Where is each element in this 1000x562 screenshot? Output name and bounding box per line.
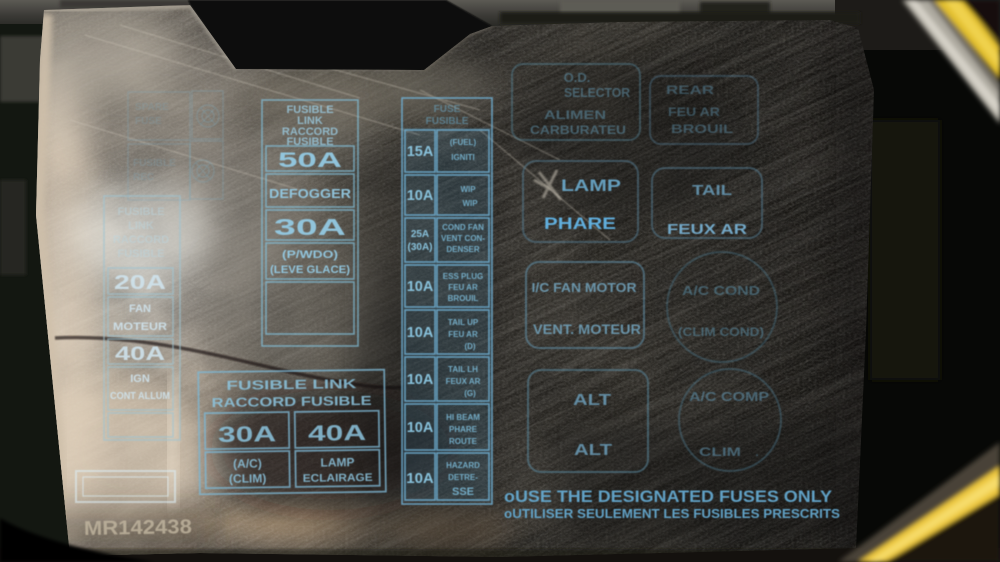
svg-text:MOTEUR: MOTEUR	[113, 321, 167, 333]
svg-text:TAIL UP: TAIL UP	[448, 318, 479, 327]
svg-text:MR142438: MR142438	[84, 516, 192, 540]
svg-text:40A: 40A	[308, 420, 367, 446]
svg-text:FUSIBLE: FUSIBLE	[426, 116, 469, 127]
svg-text:30A: 30A	[218, 421, 277, 447]
svg-text:ALT: ALT	[574, 442, 612, 459]
svg-text:BROUIL: BROUIL	[671, 122, 733, 136]
svg-text:IGNITI: IGNITI	[451, 153, 475, 162]
svg-text:IGN: IGN	[130, 373, 150, 385]
svg-text:RACCORD FUSIBLE: RACCORD FUSIBLE	[212, 393, 373, 410]
svg-text:PHARE: PHARE	[449, 425, 478, 434]
svg-text:10A: 10A	[407, 325, 434, 341]
svg-text:FAN: FAN	[129, 303, 151, 315]
svg-text:DETRE-: DETRE-	[448, 473, 478, 482]
svg-text:(30A): (30A)	[407, 242, 432, 253]
svg-text:FEU AR: FEU AR	[448, 283, 478, 292]
svg-text:(CLIM COND): (CLIM COND)	[678, 325, 764, 339]
svg-text:CARBURATEU: CARBURATEU	[530, 123, 626, 137]
svg-text:ALIMEN: ALIMEN	[544, 108, 606, 122]
svg-text:15A: 15A	[407, 144, 434, 160]
svg-text:ALT: ALT	[573, 392, 611, 409]
svg-text:FEUX AR: FEUX AR	[667, 221, 747, 238]
svg-text:10A: 10A	[407, 372, 434, 388]
svg-text:A/C COND: A/C COND	[682, 283, 760, 298]
svg-text:40A: 40A	[115, 344, 165, 365]
svg-text:TAIL: TAIL	[692, 182, 732, 199]
svg-text:(CLIM): (CLIM)	[229, 471, 267, 486]
svg-text:A/C COMP: A/C COMP	[689, 389, 769, 404]
svg-text:REAR: REAR	[666, 83, 714, 97]
svg-text:HAZARD: HAZARD	[446, 461, 480, 470]
svg-text:SELECTOR: SELECTOR	[564, 85, 631, 100]
svg-text:FUSIBLE: FUSIBLE	[286, 136, 333, 148]
svg-text:oUTILISER SEULEMENT LES FUSIBL: oUTILISER SEULEMENT LES FUSIBLES PRESCRI…	[504, 507, 840, 521]
svg-text:FEU AR: FEU AR	[448, 330, 478, 339]
svg-text:FEUX AR: FEUX AR	[446, 377, 481, 386]
svg-text:SSE: SSE	[452, 486, 474, 498]
svg-text:10A: 10A	[407, 188, 434, 204]
svg-text:PHARE: PHARE	[544, 214, 616, 233]
svg-text:10A: 10A	[407, 279, 434, 295]
svg-text:FUSIBLE: FUSIBLE	[133, 158, 176, 169]
svg-text:(LEVE GLACE): (LEVE GLACE)	[270, 264, 350, 276]
svg-text:(A/C): (A/C)	[233, 456, 262, 470]
svg-text:RACCORD: RACCORD	[113, 234, 169, 246]
svg-text:ECLAIRAGE: ECLAIRAGE	[303, 472, 373, 485]
svg-text:ESS PLUG: ESS PLUG	[443, 272, 483, 281]
svg-text:DEFOGGER: DEFOGGER	[269, 186, 352, 201]
svg-text:REC: REC	[133, 172, 154, 183]
svg-text:20A: 20A	[114, 272, 166, 294]
svg-text:25A: 25A	[411, 229, 429, 240]
svg-text:VENT. MOTEUR: VENT. MOTEUR	[533, 322, 641, 337]
svg-text:CONT ALLUM: CONT ALLUM	[110, 391, 170, 402]
svg-text:FUSIBLE LINK: FUSIBLE LINK	[226, 376, 357, 393]
svg-text:I/C FAN MOTOR: I/C FAN MOTOR	[532, 280, 638, 295]
svg-text:O.D.: O.D.	[564, 70, 591, 85]
svg-text:FUSIBLE: FUSIBLE	[117, 206, 164, 218]
svg-text:(FUEL): (FUEL)	[450, 138, 477, 147]
svg-text:CLIM: CLIM	[699, 445, 741, 459]
svg-text:(D): (D)	[464, 342, 475, 351]
svg-text:LAMP: LAMP	[320, 455, 354, 469]
svg-text:(P/WDO): (P/WDO)	[282, 249, 338, 261]
svg-text:(G): (G)	[464, 389, 476, 398]
svg-text:TAIL LH: TAIL LH	[448, 365, 478, 374]
svg-text:30A: 30A	[274, 214, 346, 240]
svg-text:SPARE: SPARE	[135, 102, 169, 113]
svg-text:LINK: LINK	[128, 220, 154, 232]
svg-text:WIP: WIP	[460, 185, 476, 194]
svg-text:VENT CON-: VENT CON-	[441, 234, 485, 243]
svg-text:LAMP: LAMP	[561, 176, 621, 195]
svg-text:ROUTE: ROUTE	[449, 437, 478, 446]
svg-text:FUSE: FUSE	[135, 116, 162, 127]
svg-text:WIP: WIP	[462, 199, 478, 208]
svg-text:DENSER: DENSER	[446, 245, 480, 254]
svg-text:FEU AR: FEU AR	[668, 105, 720, 119]
svg-text:COND FAN: COND FAN	[442, 223, 484, 232]
svg-text:10A: 10A	[407, 420, 434, 436]
svg-text:50A: 50A	[278, 149, 342, 172]
svg-text:.: .	[755, 447, 758, 459]
svg-text:oUSE THE DESIGNATED FUSES ONLY: oUSE THE DESIGNATED FUSES ONLY	[504, 488, 832, 506]
svg-text:10A: 10A	[406, 470, 434, 487]
svg-text:FUSIBLE: FUSIBLE	[117, 248, 164, 260]
svg-text:HI BEAM: HI BEAM	[446, 413, 480, 422]
svg-text:FUSE: FUSE	[434, 104, 461, 115]
svg-text:BROUIL: BROUIL	[448, 294, 479, 303]
